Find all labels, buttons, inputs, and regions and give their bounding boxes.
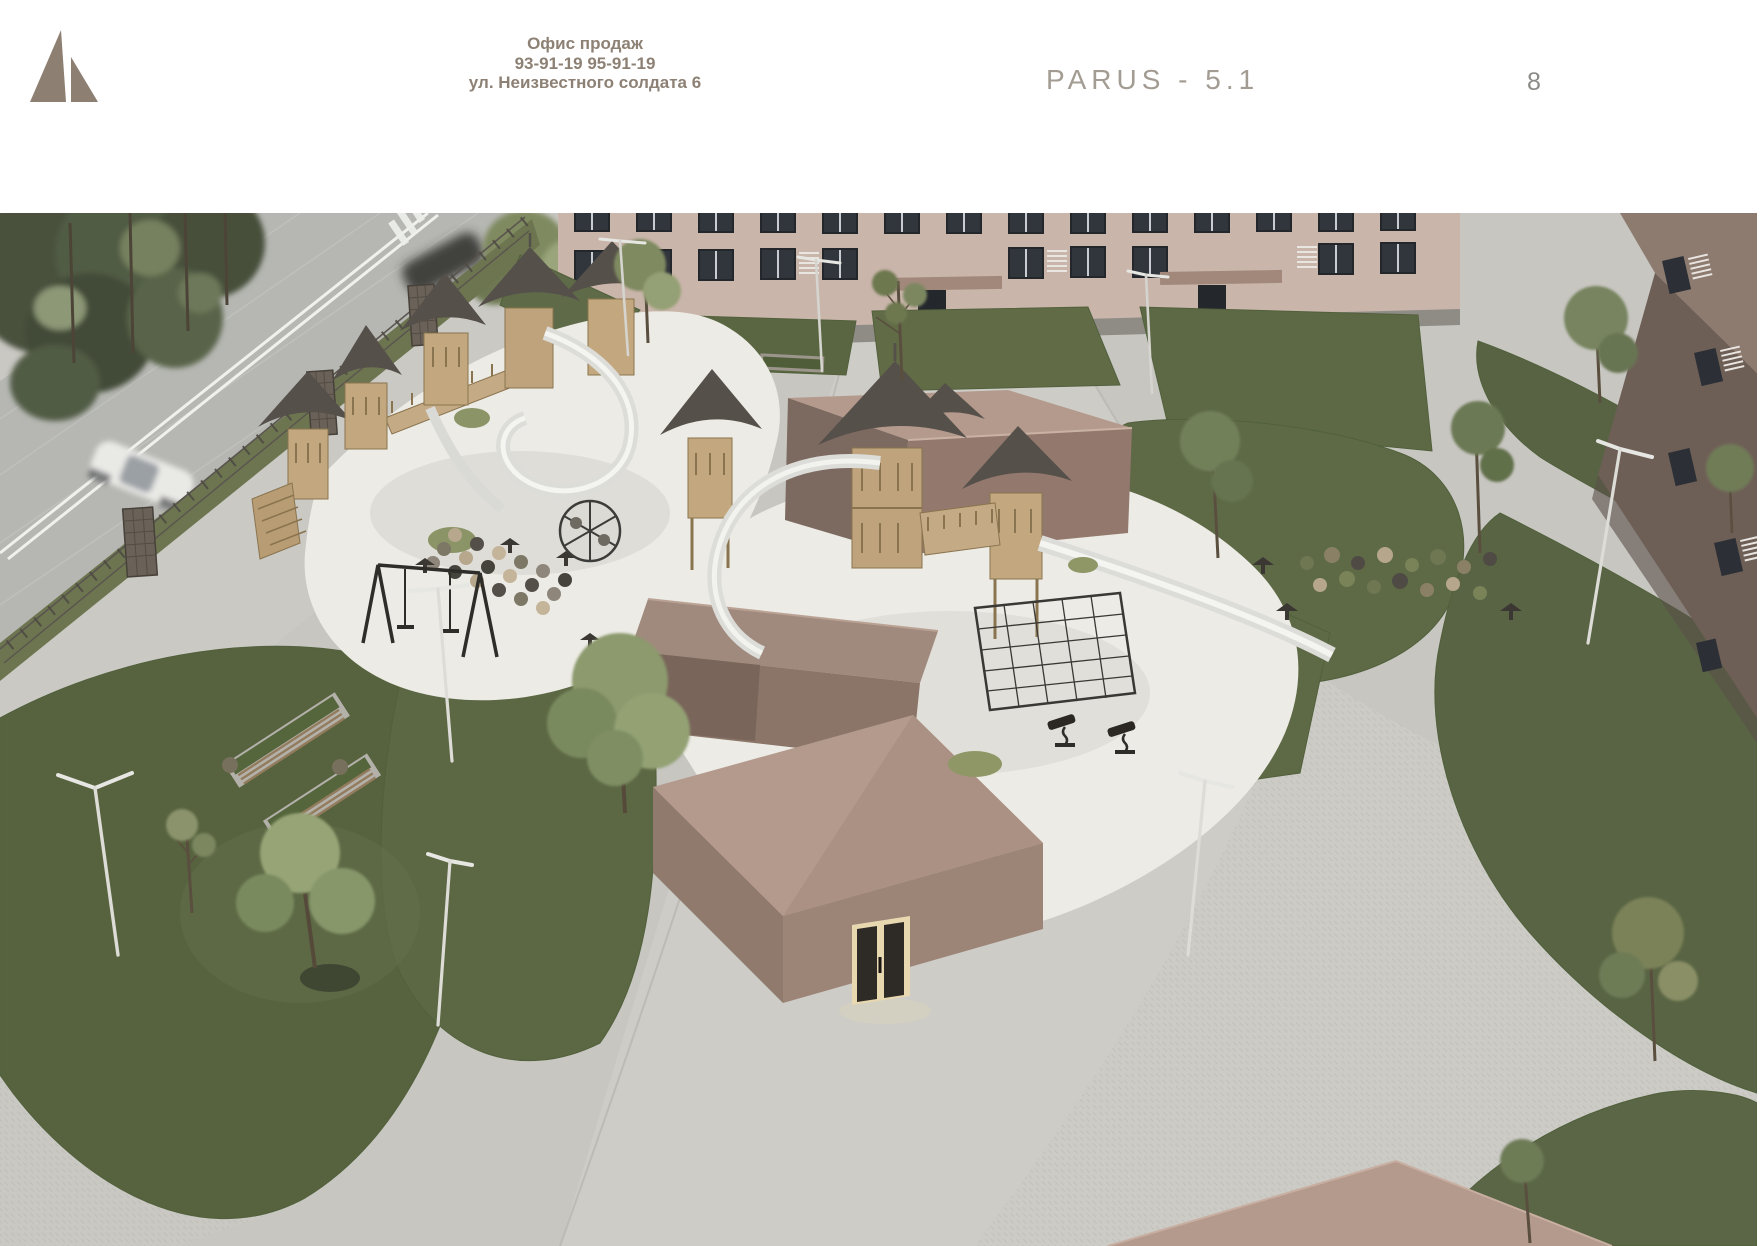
office-label: Офис продаж: [435, 34, 735, 54]
sales-office-contacts: Офис продаж 93-91-19 95-91-19 ул. Неизве…: [435, 34, 735, 93]
logo-large-sail-icon: [30, 30, 66, 102]
render-svg: [0, 213, 1757, 1246]
office-phones: 93-91-19 95-91-19: [435, 54, 735, 74]
pavilion-door: [852, 916, 910, 1005]
entrance-canopy: [1160, 270, 1282, 285]
courtyard-render-image: [0, 213, 1757, 1246]
office-address: ул. Неизвестного солдата 6: [435, 73, 735, 93]
round-planter: [332, 759, 348, 775]
grass-mound: [1068, 557, 1098, 573]
carousel: [560, 501, 620, 561]
fence-pillar: [123, 507, 158, 577]
round-planter: [222, 757, 238, 773]
page-header: Офис продаж 93-91-19 95-91-19 ул. Неизве…: [0, 0, 1760, 213]
grass-mound: [454, 408, 490, 428]
page-number: 8: [1527, 68, 1541, 97]
parus-logo: [26, 24, 106, 106]
hedge-planter: [760, 353, 825, 372]
page-title: PARUS - 5.1: [1046, 64, 1259, 96]
grass-mound: [948, 751, 1002, 777]
logo-small-sail-icon: [71, 57, 98, 102]
